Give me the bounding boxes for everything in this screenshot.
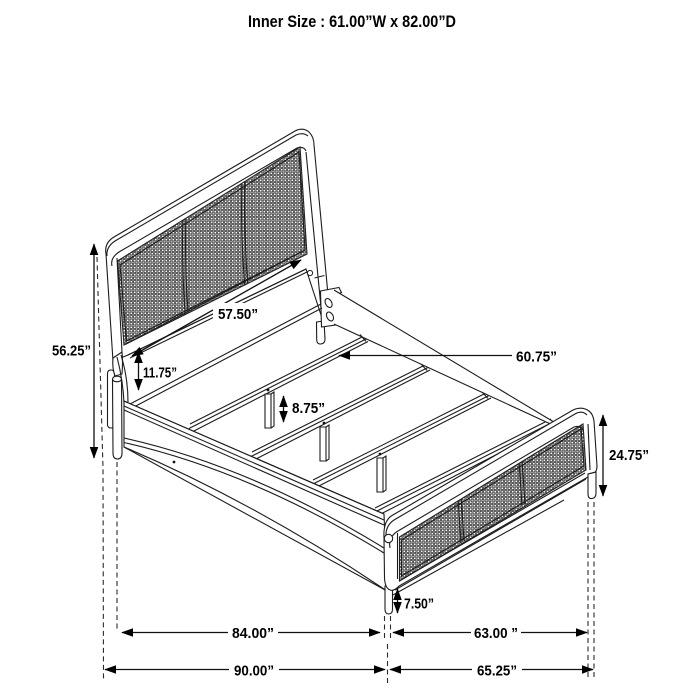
svg-text:57.50”: 57.50” (218, 306, 258, 323)
svg-text:84.00”: 84.00” (232, 625, 274, 642)
svg-text:11.75”: 11.75” (143, 365, 177, 382)
svg-text:7.50”: 7.50” (404, 596, 434, 613)
svg-text:90.00”: 90.00” (234, 663, 274, 680)
svg-text:63.00 ”: 63.00 ” (474, 625, 518, 642)
svg-text:65.25”: 65.25” (477, 663, 517, 680)
svg-text:60.75”: 60.75” (516, 349, 557, 366)
svg-text:24.75”: 24.75” (609, 447, 649, 464)
svg-text:56.25”: 56.25” (52, 343, 91, 360)
svg-text:8.75”: 8.75” (292, 400, 325, 417)
svg-text:Inner Size : 61.00”W x 82.00”D: Inner Size : 61.00”W x 82.00”D (248, 13, 456, 31)
